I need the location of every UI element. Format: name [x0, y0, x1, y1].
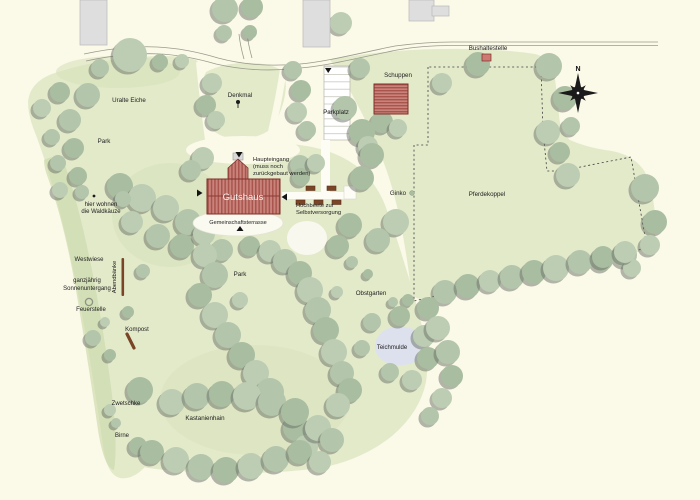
- tree: [441, 365, 463, 387]
- tree: [550, 142, 570, 162]
- label-feuerstelle: Feuerstelle: [76, 307, 106, 313]
- tree: [643, 210, 667, 234]
- tree: [327, 235, 349, 257]
- tree: [592, 246, 614, 268]
- label-schuppen: Schuppen: [384, 72, 412, 79]
- tree: [333, 96, 357, 120]
- tree: [152, 54, 168, 70]
- tree: [366, 228, 390, 252]
- tree: [426, 316, 450, 340]
- tree: [330, 12, 352, 34]
- site-plan-page: N BushaltestelleSchuppenDenkmalParkplatz…: [0, 0, 700, 500]
- tree: [136, 264, 150, 278]
- raised-bed: [327, 186, 336, 191]
- tree: [383, 209, 409, 235]
- tree: [389, 119, 407, 137]
- tree: [307, 154, 325, 172]
- label-zwetschke: Zwetschke: [112, 401, 141, 407]
- tree: [433, 280, 457, 304]
- tree: [146, 224, 170, 248]
- tree: [163, 447, 189, 473]
- ginko-tree-marker: [410, 191, 415, 196]
- tree: [216, 25, 232, 41]
- tree: [536, 120, 560, 144]
- label-uralte-eiche: Uralte Eiche: [112, 97, 146, 104]
- tree: [331, 286, 343, 298]
- label-abendbaenke: Abendbänke: [112, 261, 118, 294]
- tree: [140, 440, 164, 464]
- bench-row-marker: [122, 258, 125, 296]
- tree: [175, 54, 189, 68]
- tree: [52, 182, 68, 198]
- label-denkmal: Denkmal: [228, 92, 252, 99]
- label-parkplatz: Parkplatz: [323, 109, 349, 116]
- tree: [432, 388, 452, 408]
- tree: [350, 58, 370, 78]
- tree: [363, 269, 373, 279]
- tree: [421, 407, 439, 425]
- tree: [76, 83, 100, 107]
- tree: [113, 38, 147, 72]
- tree: [50, 155, 66, 171]
- tree: [360, 143, 384, 167]
- schuppen-building: [374, 84, 408, 114]
- label-waldkauze-2: die Waldkäuze: [81, 209, 121, 215]
- label-bushaltestelle: Bushaltestelle: [469, 45, 508, 52]
- tree: [91, 59, 109, 77]
- tree: [432, 73, 452, 93]
- label-park-center: Park: [234, 271, 248, 278]
- tree: [543, 255, 569, 281]
- compass-north-label: N: [575, 66, 580, 73]
- gray-building: [409, 0, 434, 21]
- tree: [456, 274, 480, 298]
- tree: [188, 454, 214, 480]
- tree: [181, 160, 201, 180]
- label-waldkauze-1: hier wohnen: [85, 202, 118, 208]
- tree: [115, 191, 131, 207]
- label-ginko: Ginko: [390, 190, 407, 197]
- tree: [388, 297, 398, 307]
- open-clearing: [287, 221, 327, 255]
- tree: [64, 138, 84, 158]
- tree: [100, 317, 110, 327]
- tree: [184, 383, 210, 409]
- gray-building: [303, 0, 330, 47]
- bus-stop-marker: [482, 54, 491, 61]
- gray-building: [432, 6, 449, 16]
- tree: [640, 235, 660, 255]
- gray-building: [80, 0, 107, 45]
- label-kompost: Kompost: [125, 327, 149, 333]
- tree: [402, 370, 422, 390]
- label-haupteingang-1: Haupteingang: [253, 157, 289, 163]
- tree: [122, 306, 134, 318]
- tree: [104, 349, 116, 361]
- label-hochbeete-1: Hochbeete zur: [296, 203, 334, 209]
- tree: [614, 241, 636, 263]
- label-terrasse: Gemeinschaftsterrasse: [209, 220, 267, 226]
- tree: [121, 211, 143, 233]
- tree: [213, 457, 239, 483]
- tree: [298, 121, 316, 139]
- tree: [568, 250, 592, 274]
- tree: [346, 256, 358, 268]
- tree: [350, 166, 374, 190]
- tree: [75, 185, 89, 199]
- tree: [536, 53, 562, 79]
- tree: [202, 262, 228, 288]
- gutshaus-label: Gutshaus: [223, 192, 264, 203]
- tree: [556, 163, 580, 187]
- label-park-west: Park: [98, 138, 112, 145]
- tree: [44, 129, 60, 145]
- tree: [127, 377, 153, 403]
- tree: [402, 294, 414, 306]
- tree: [562, 117, 580, 135]
- label-sonnenuntergang-2: Sonnenuntergang: [63, 286, 111, 292]
- label-teichmulde: Teichmulde: [377, 345, 408, 351]
- label-kastanienhain: Kastanienhain: [185, 415, 225, 422]
- owl-spot-marker: [93, 195, 96, 198]
- tree: [33, 99, 51, 117]
- tree: [207, 111, 225, 129]
- tree: [170, 234, 194, 258]
- label-haupteingang-2: (muss noch: [253, 164, 283, 170]
- tree: [69, 167, 87, 185]
- label-pferdekoppel: Pferdekoppel: [469, 191, 505, 198]
- raised-bed: [306, 186, 315, 191]
- tree: [417, 297, 439, 319]
- tree: [631, 174, 659, 202]
- tree: [284, 61, 302, 79]
- label-hochbeete-2: Selbstversorgung: [296, 210, 341, 216]
- tree: [263, 446, 289, 472]
- tree: [232, 292, 248, 308]
- tree: [159, 389, 185, 415]
- footpath-horizontal: [282, 192, 346, 199]
- tree: [50, 82, 70, 102]
- tree: [111, 418, 121, 428]
- tree: [85, 330, 101, 346]
- tree: [287, 102, 307, 122]
- tree: [243, 25, 257, 39]
- label-obstgarten: Obstgarten: [356, 290, 387, 297]
- tree: [363, 313, 381, 331]
- tree: [390, 306, 410, 326]
- label-sonnenuntergang-1: ganzjährig: [73, 278, 101, 284]
- tree: [354, 340, 370, 356]
- tree: [309, 451, 331, 473]
- tree: [436, 340, 460, 364]
- tree: [209, 381, 235, 407]
- tree: [281, 398, 309, 426]
- label-birne: Birne: [115, 433, 130, 439]
- tree: [338, 213, 362, 237]
- label-westwiese: Westwiese: [75, 257, 105, 263]
- tree: [238, 453, 264, 479]
- site-plan-map: N BushaltestelleSchuppenDenkmalParkplatz…: [0, 0, 700, 500]
- tree: [188, 283, 212, 307]
- tree: [326, 393, 350, 417]
- tree: [59, 109, 81, 131]
- tree: [291, 80, 311, 100]
- label-haupteingang-3: zurückgebaut werden): [253, 171, 310, 177]
- tree: [202, 73, 222, 93]
- tree: [320, 428, 344, 452]
- tree: [381, 363, 399, 381]
